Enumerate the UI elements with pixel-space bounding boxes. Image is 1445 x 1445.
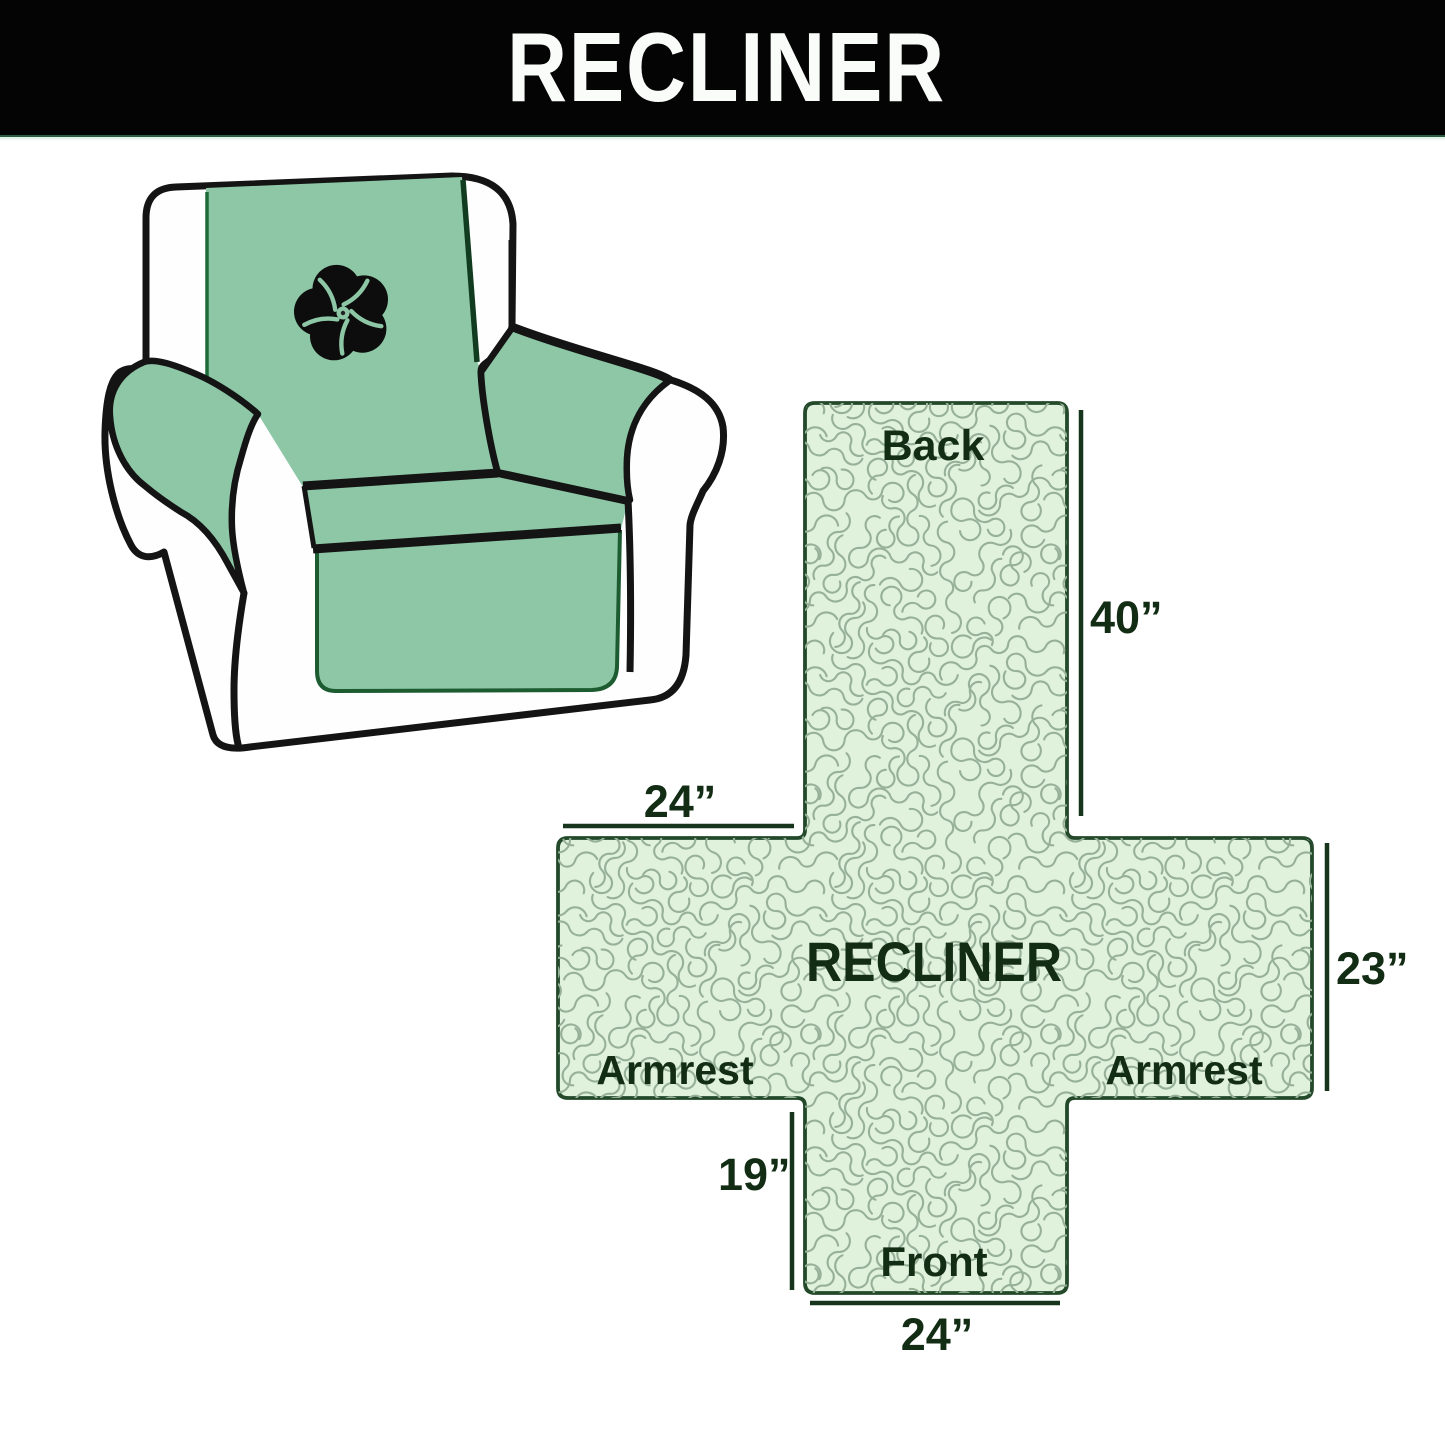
svg-text:40”: 40”: [1090, 592, 1163, 643]
svg-text:Armrest: Armrest: [596, 1047, 754, 1093]
svg-text:Armrest: Armrest: [1105, 1047, 1263, 1093]
svg-text:24”: 24”: [901, 1309, 974, 1360]
svg-text:Back: Back: [882, 422, 985, 470]
svg-text:RECLINER: RECLINER: [806, 930, 1062, 993]
svg-text:Front: Front: [880, 1238, 987, 1285]
svg-text:24”: 24”: [644, 776, 717, 827]
svg-text:23”: 23”: [1336, 943, 1409, 994]
svg-text:19”: 19”: [718, 1149, 791, 1200]
